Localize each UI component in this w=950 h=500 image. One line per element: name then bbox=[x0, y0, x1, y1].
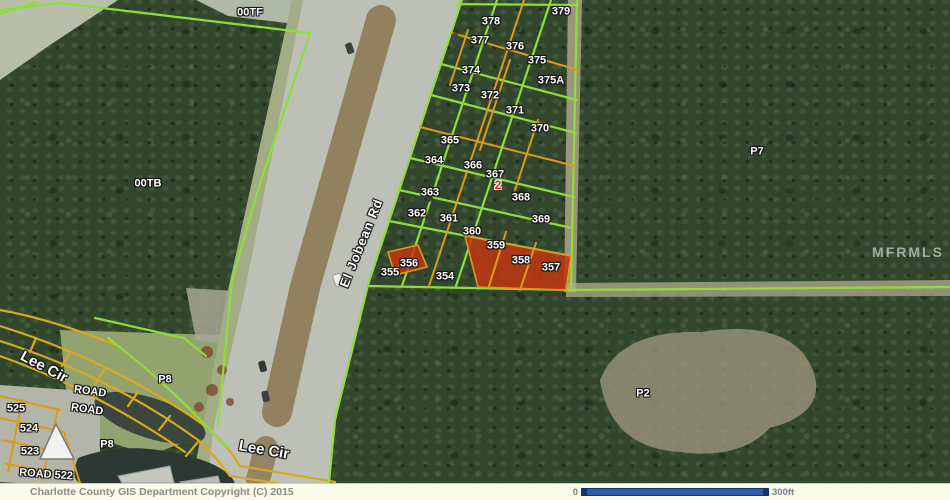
parcel-label: 378 bbox=[482, 17, 500, 28]
clearing-topleft bbox=[0, 0, 118, 80]
parcel-label: 00TF bbox=[237, 8, 263, 19]
parcel-label: 372 bbox=[481, 91, 499, 102]
parcel-label: P8 bbox=[158, 375, 171, 386]
parcel-label: 355 bbox=[381, 268, 399, 279]
scale-start-label: 0 bbox=[566, 487, 578, 498]
parcel-label: 375A bbox=[538, 76, 564, 87]
parcel-label: 376 bbox=[506, 42, 524, 53]
parcel-label: 356 bbox=[400, 259, 418, 270]
parcel-label: 377 bbox=[471, 36, 489, 47]
parcel-label: 357 bbox=[542, 263, 560, 274]
parcel-label: 366 bbox=[464, 161, 482, 172]
parcel-label: 365 bbox=[441, 136, 459, 147]
sand-patch-p2 bbox=[600, 329, 816, 454]
parcel-label: 375 bbox=[528, 56, 546, 67]
parcel-label: 523 bbox=[21, 447, 39, 458]
parcel-label: 359 bbox=[487, 241, 505, 252]
watermark: MFRMLS bbox=[872, 245, 944, 259]
parcel-label: 369 bbox=[532, 215, 550, 226]
copyright-text: Charlotte County GIS Department Copyrigh… bbox=[30, 486, 294, 498]
parcel-label: 360 bbox=[463, 227, 481, 238]
parcel-label: 371 bbox=[506, 106, 524, 117]
parcel-label: 524 bbox=[20, 424, 38, 435]
parcel-label: 370 bbox=[531, 124, 549, 135]
parcel-label: 374 bbox=[462, 66, 480, 77]
scale-end-label: 300ft bbox=[772, 487, 794, 498]
parcel-label: P7 bbox=[750, 147, 763, 158]
map-canvas[interactable]: 379378377376375374375A373372371370365364… bbox=[0, 0, 950, 483]
parcel-label: 379 bbox=[552, 7, 570, 18]
parcel-label: 354 bbox=[436, 272, 454, 283]
parcel-label: 361 bbox=[440, 214, 458, 225]
scale-bar bbox=[581, 488, 769, 496]
attribution-bar: Charlotte County GIS Department Copyrigh… bbox=[0, 483, 950, 500]
parcel-label: 373 bbox=[452, 84, 470, 95]
parcel-label: 363 bbox=[421, 188, 439, 199]
parcel-label: P8 bbox=[100, 440, 113, 451]
parcel-label: 358 bbox=[512, 256, 530, 267]
parcel-label: 364 bbox=[425, 156, 443, 167]
parcel-label: 525 bbox=[7, 404, 25, 415]
parcel-label: 368 bbox=[512, 193, 530, 204]
gis-map-viewer: 379378377376375374375A373372371370365364… bbox=[0, 0, 950, 500]
parcel-label: 00TB bbox=[135, 179, 162, 190]
parcel-label: 362 bbox=[408, 209, 426, 220]
listing-marker: 2 bbox=[495, 179, 502, 191]
parcel-label: P2 bbox=[636, 389, 649, 400]
